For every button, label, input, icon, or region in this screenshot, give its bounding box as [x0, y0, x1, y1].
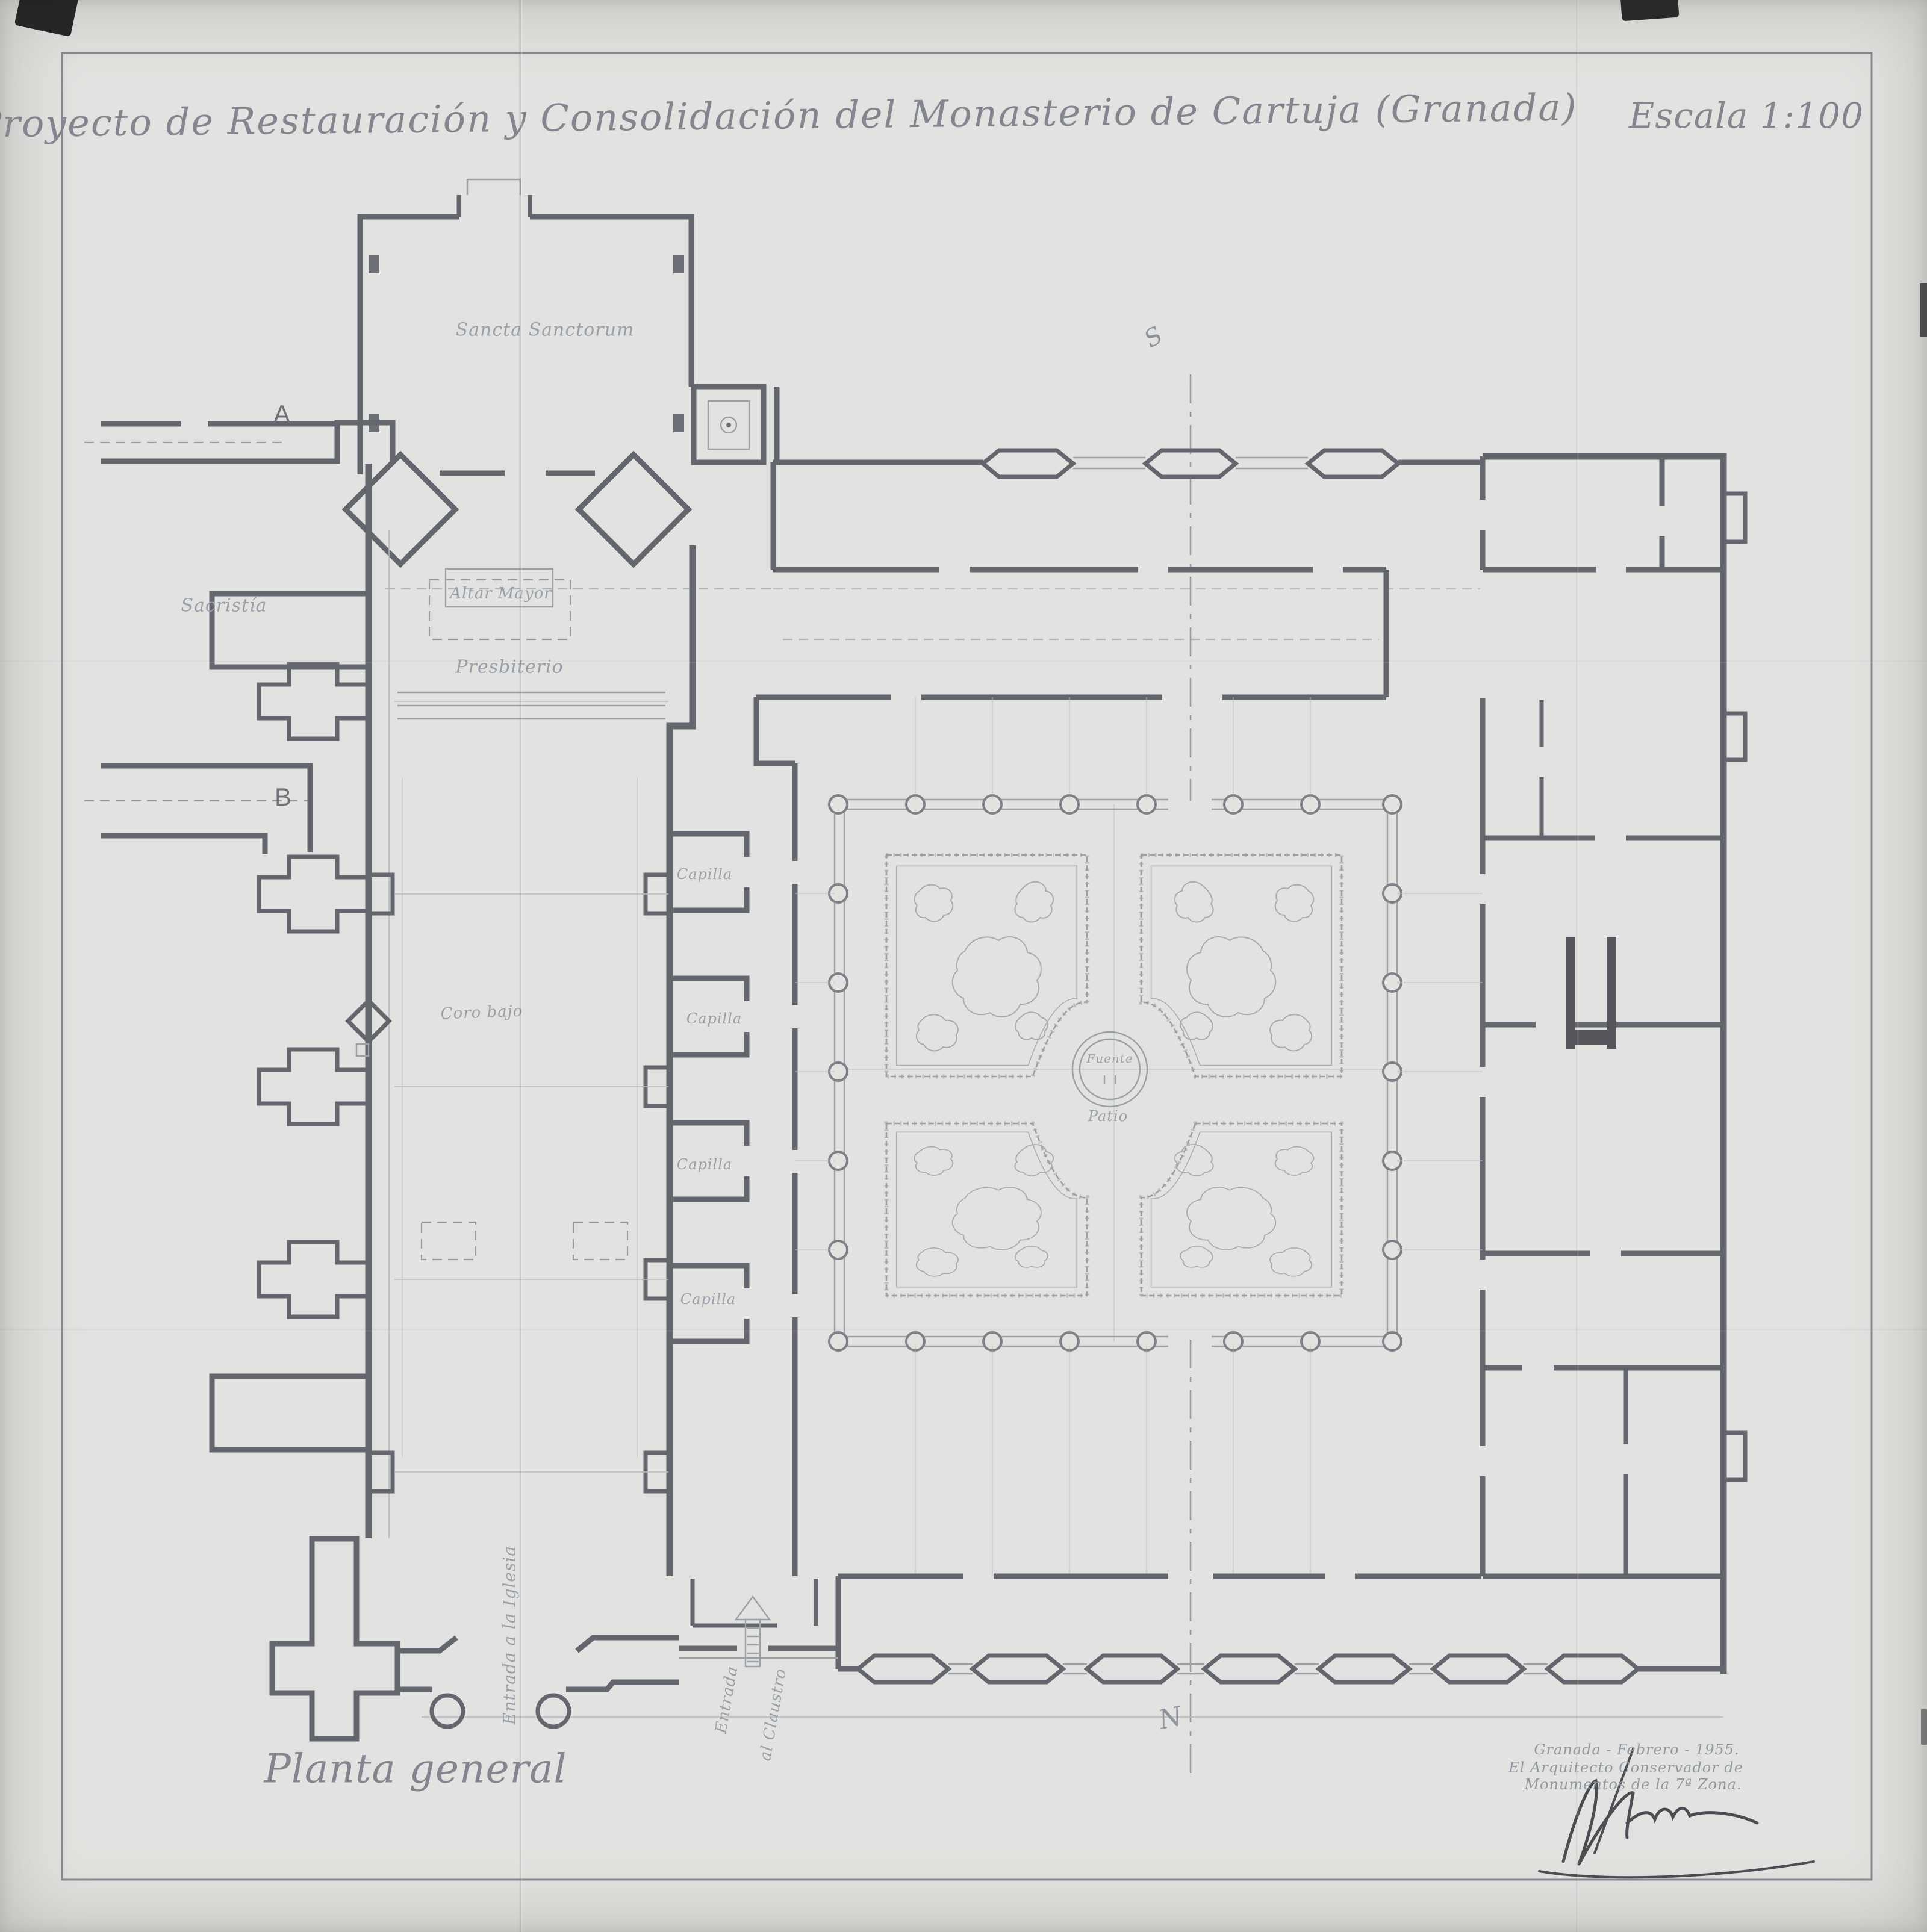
label-capilla-4: Capilla [680, 1291, 736, 1308]
sheet-border [62, 53, 1872, 1880]
fold-crease-vertical-left-top [518, 0, 522, 602]
label-patio: Patio [1088, 1108, 1128, 1125]
label-entrada-iglesia: Entrada a la Iglesia [500, 1545, 520, 1725]
label-coro: Coro bajo [440, 1002, 523, 1023]
west-corridors [101, 423, 393, 854]
floor-plan-drawing [0, 0, 1927, 1932]
label-fuente: Fuente [1086, 1051, 1133, 1066]
fold-crease-vertical-right [1575, 0, 1579, 1932]
drawing-sheet: Proyecto de Restauración y Consolidación… [0, 0, 1927, 1932]
label-altar-mayor: Altar Mayor [450, 585, 552, 603]
label-capilla-1: Capilla [677, 866, 732, 883]
axis-lines [84, 374, 1723, 1776]
signature-line-1: Granada - Febrero - 1955. [1534, 1741, 1739, 1758]
fold-crease-horizontal-upper [0, 660, 1927, 663]
east-wing [1483, 698, 1745, 1674]
church-west-range [212, 464, 693, 1739]
label-capilla-2: Capilla [686, 1010, 742, 1027]
scan-edge-mark-right-lower [1921, 1709, 1927, 1745]
sagrario-block [346, 179, 777, 564]
signature-line-3: Monumentos de la 7ª Zona. [1524, 1776, 1742, 1793]
signature-line-2: El Arquitecto Conservador de [1508, 1759, 1743, 1776]
section-marker-a: A [273, 400, 290, 429]
scan-edge-mark-right-upper [1920, 283, 1927, 337]
fold-crease-horizontal-lower [0, 1328, 1927, 1332]
section-marker-b: B [275, 783, 291, 812]
label-sacristia: Sacristía [181, 595, 267, 617]
south-wing [397, 1576, 1723, 1727]
scale-label: Escala 1:100 [1629, 95, 1864, 136]
label-capilla-3: Capilla [677, 1156, 732, 1173]
cloister-arcade [795, 697, 1483, 1576]
side-chapels [670, 697, 795, 1576]
label-sancta-sanctorum: Sancta Sanctorum [456, 320, 635, 341]
